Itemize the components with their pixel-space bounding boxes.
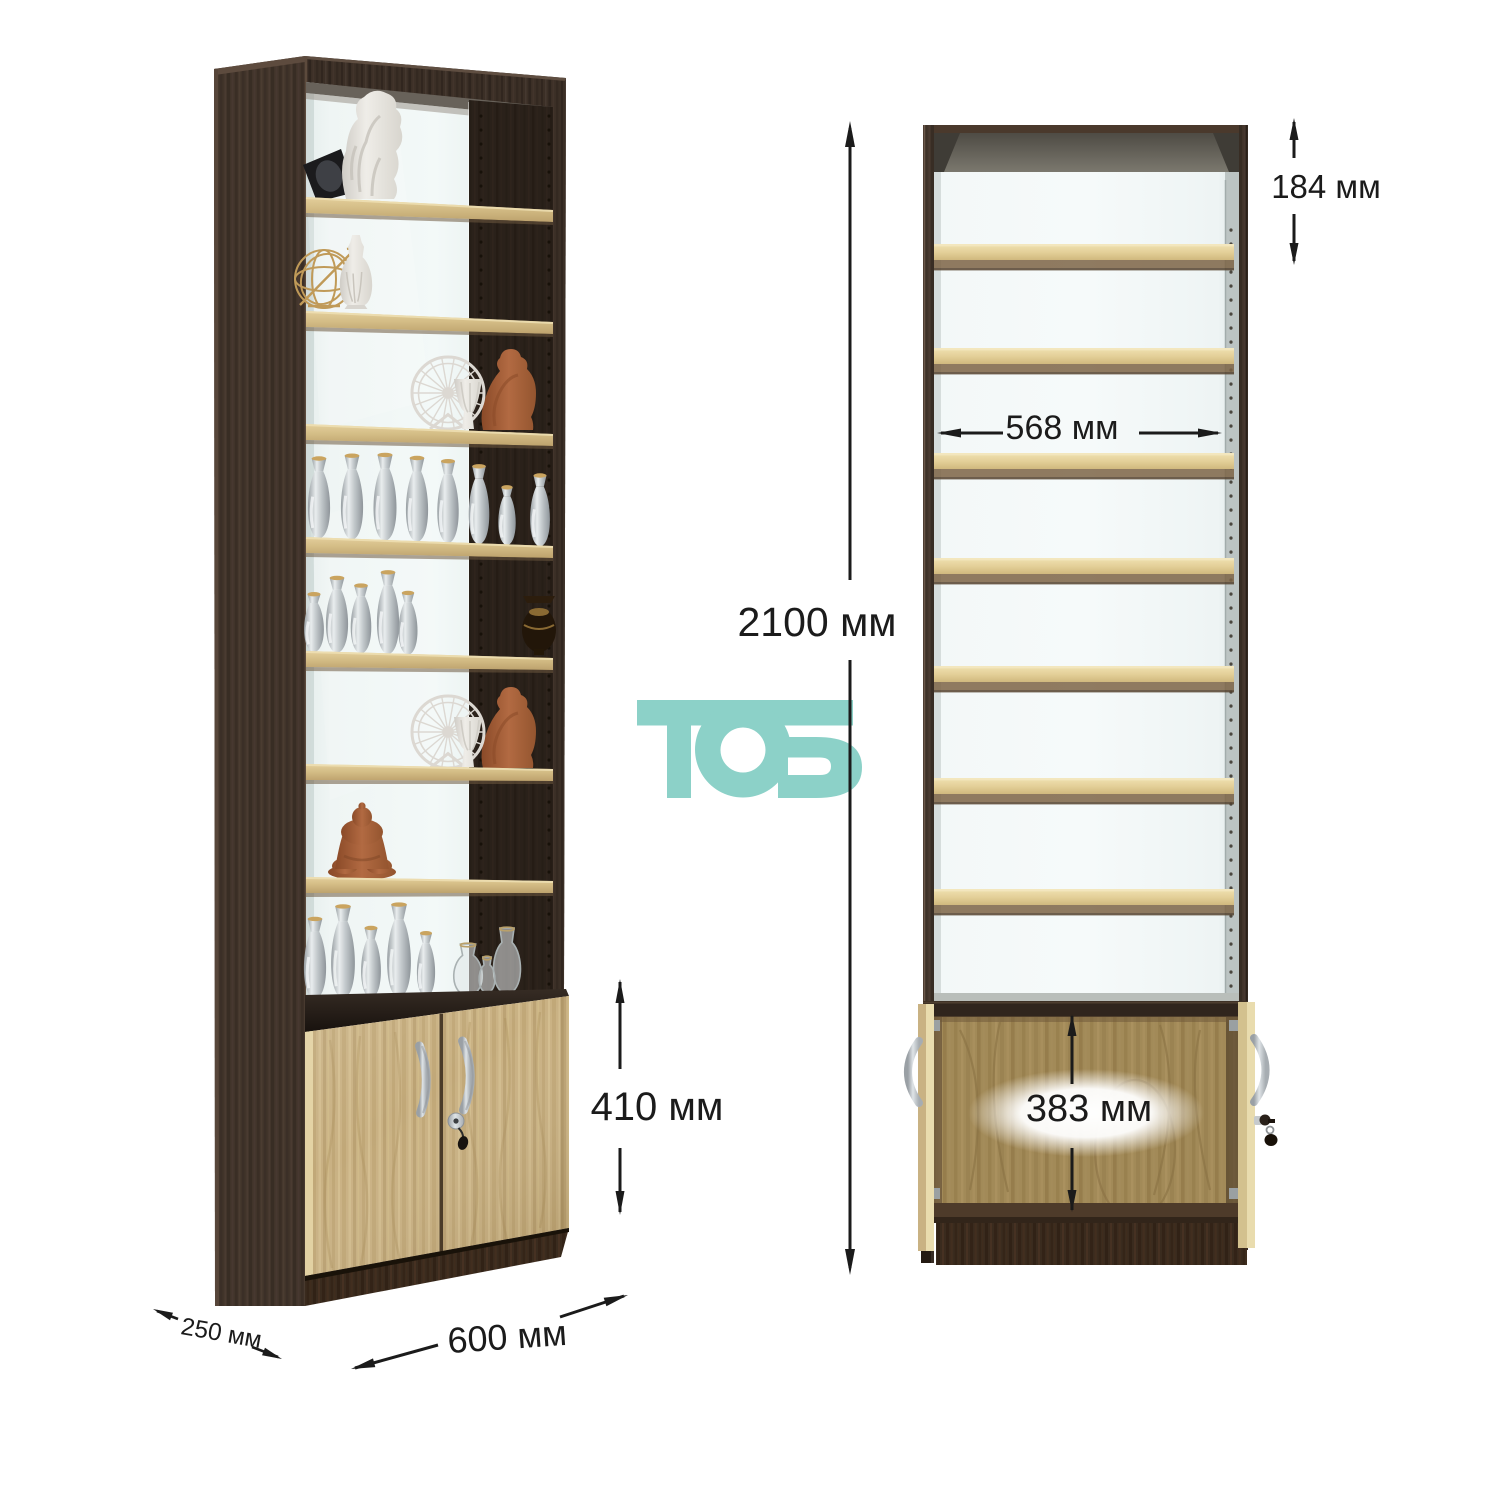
svg-text:600 мм: 600 мм bbox=[446, 1312, 568, 1361]
svg-text:410 мм: 410 мм bbox=[591, 1085, 724, 1129]
svg-text:2100 мм: 2100 мм bbox=[738, 599, 897, 645]
svg-text:568 мм: 568 мм bbox=[1006, 409, 1119, 447]
svg-text:184 мм: 184 мм bbox=[1271, 168, 1381, 205]
svg-text:383 мм: 383 мм bbox=[1026, 1088, 1152, 1130]
